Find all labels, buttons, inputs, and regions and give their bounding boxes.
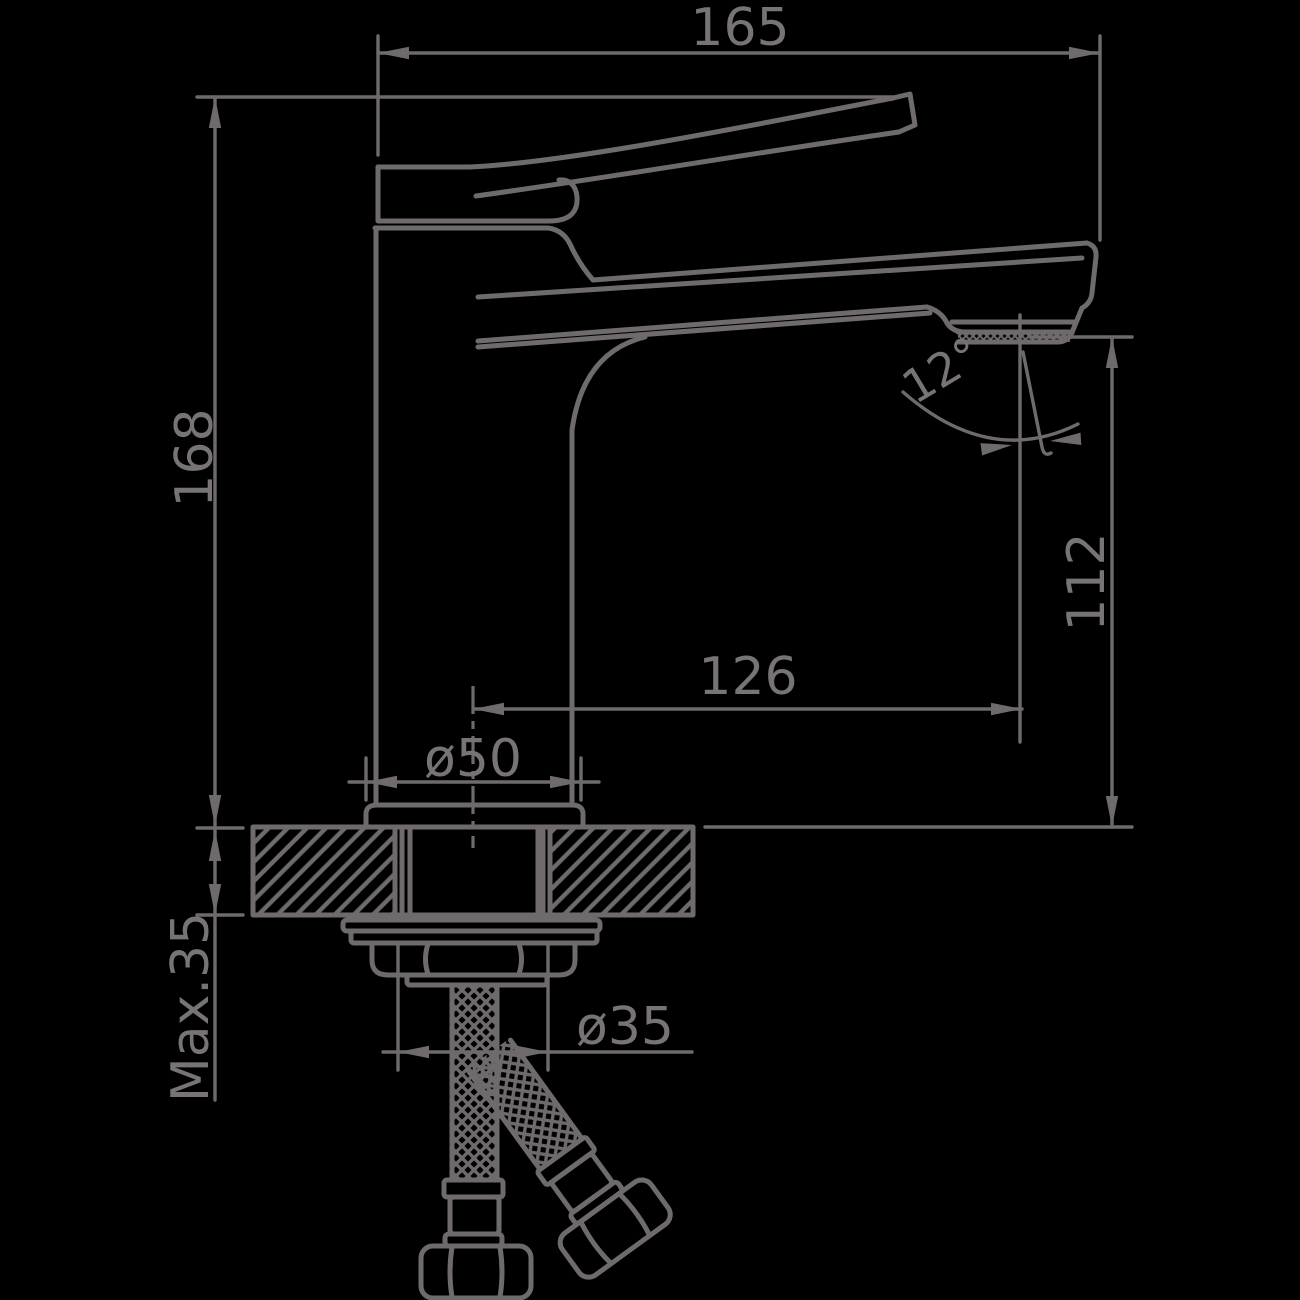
- spout-bottom-far: [478, 307, 927, 341]
- hose-right-ring: [569, 1181, 623, 1225]
- dim-126-arrow-right: [991, 703, 1022, 715]
- dim-max35-arrow-bottom: [209, 884, 221, 915]
- spout-tip-face: [1082, 243, 1096, 308]
- mounting-hardware: [343, 920, 600, 985]
- dim-50-arrow-right: [550, 776, 581, 788]
- mounting-nut-faces: [426, 944, 522, 974]
- hose-left-nut: [421, 1246, 531, 1298]
- dimensions: 165 168 Max.35 112 126 ø50: [161, 0, 1132, 1102]
- dim-max35-arrow-top: [209, 830, 221, 861]
- hose-left-connector: [450, 1197, 499, 1234]
- hose-left-nut-faces: [450, 1247, 502, 1297]
- dim-168-arrow-bottom: [209, 795, 221, 826]
- spout-top-near: [375, 228, 1087, 280]
- dim-165-label: 165: [690, 0, 789, 58]
- dim-168-arrow-top: [209, 97, 221, 128]
- dim-165-arrow-right: [1069, 47, 1100, 59]
- dim-35-arrow-left: [398, 1046, 429, 1058]
- lever-top-edge: [378, 98, 893, 167]
- countertop-hatch-left: [255, 829, 394, 913]
- countertop-hatch-right: [551, 829, 691, 913]
- dim-50-arrow-left: [366, 776, 397, 788]
- spout-bottom-near: [478, 313, 930, 347]
- dim-165-ext-lines: [378, 36, 1100, 240]
- dim-112-label: 112: [1057, 532, 1117, 631]
- hose-left: [421, 985, 531, 1298]
- dim-126-arrow-left: [473, 703, 504, 715]
- lever-tip: [893, 94, 915, 132]
- washer-plate-2: [351, 931, 597, 943]
- hose-right-nut-faces: [579, 1193, 650, 1264]
- dim-35-label: ø35: [576, 997, 674, 1057]
- faucet-dimension-diagram: 165 168 Max.35 112 126 ø50: [0, 0, 1300, 1300]
- lever-bottom-edge: [476, 132, 899, 196]
- dim-112-arrow-top: [1106, 337, 1118, 368]
- dim-ticks-counter: [197, 828, 243, 915]
- washer-plate-3: [407, 975, 547, 985]
- dim-165-arrow-left: [378, 47, 409, 59]
- hose-left-ferrule: [444, 1180, 503, 1197]
- faucet-outline: [366, 94, 1096, 827]
- dim-168-label: 168: [165, 408, 225, 507]
- dim-112-arrow-bottom: [1106, 796, 1118, 827]
- hose-right-nut: [555, 1175, 675, 1282]
- column-right-edge: [572, 337, 645, 802]
- dim-max35-label: Max.35: [161, 912, 221, 1102]
- dim-35-arrow-right: [517, 1046, 548, 1058]
- technical-drawing: 165 168 Max.35 112 126 ø50: [0, 0, 1300, 1300]
- dim-126-label: 126: [698, 647, 797, 707]
- dim-50-label: ø50: [424, 729, 522, 789]
- mounting-nut: [372, 943, 575, 975]
